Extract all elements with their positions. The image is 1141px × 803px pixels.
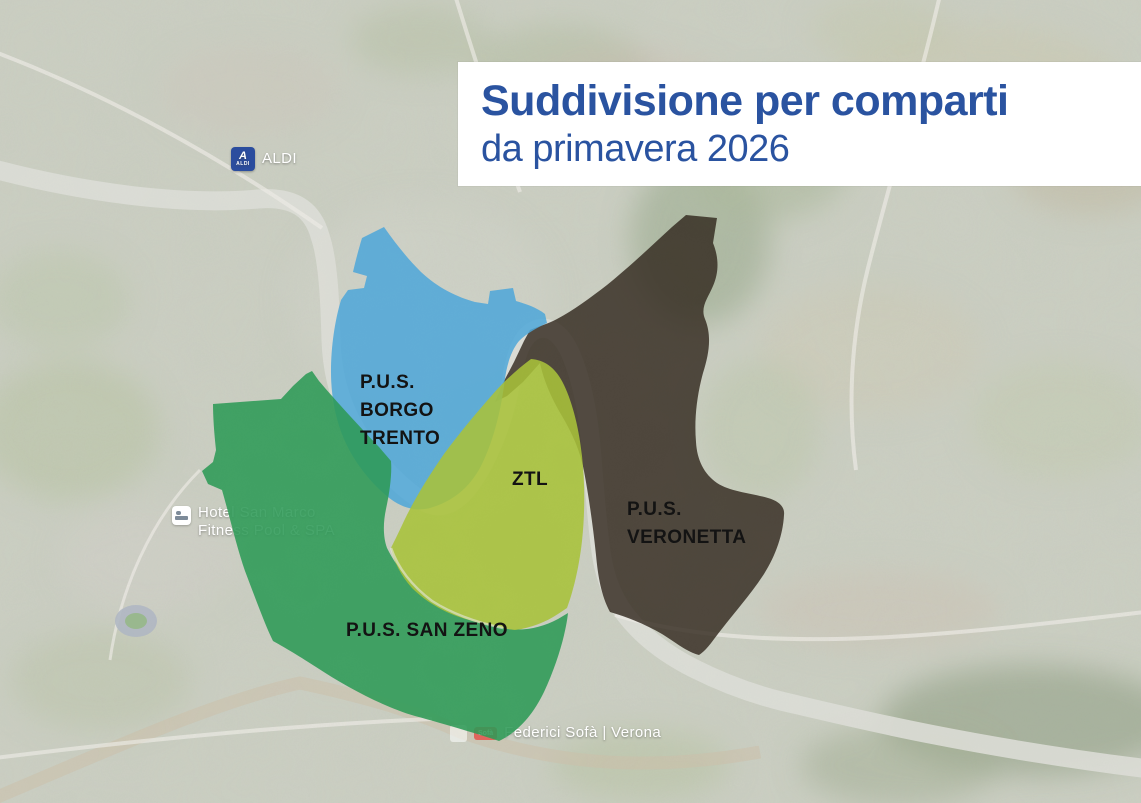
label-line: TRENTO <box>360 428 440 449</box>
label-borgo-trento: P.U.S. BORGO TRENTO <box>360 369 440 453</box>
map-infographic: A ALDI ALDI Hotel San Marco Fitness Pool… <box>0 0 1141 803</box>
label-line: P.U.S. <box>627 499 682 520</box>
label-ztl: ZTL <box>512 466 548 494</box>
title-card: Suddivisione per comparti da primavera 2… <box>458 62 1141 186</box>
label-veronetta: P.U.S. VERONETTA <box>627 496 746 552</box>
label-san-zeno: P.U.S. SAN ZENO <box>346 617 508 645</box>
label-line: P.U.S. <box>360 372 415 393</box>
label-line: ZTL <box>512 469 548 490</box>
label-line: BORGO <box>360 400 434 421</box>
page-title: Suddivisione per comparti <box>481 76 1141 126</box>
page-subtitle: da primavera 2026 <box>481 126 1141 172</box>
label-line: VERONETTA <box>627 527 746 548</box>
label-line: P.U.S. SAN ZENO <box>346 620 508 641</box>
